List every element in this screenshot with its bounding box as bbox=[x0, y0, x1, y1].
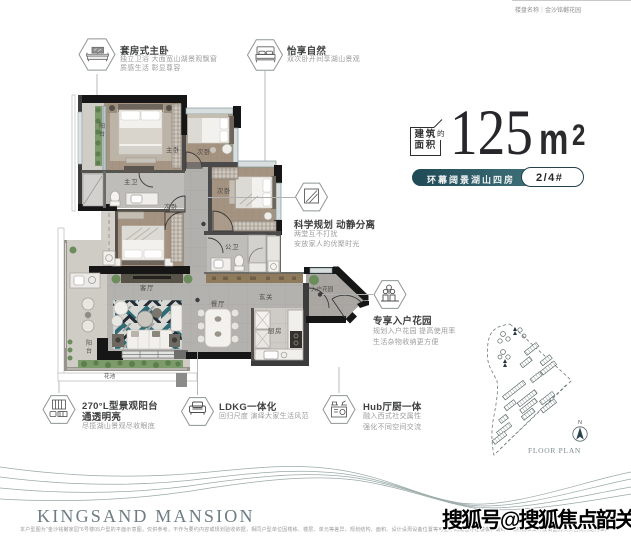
svg-text:入户花园: 入户花园 bbox=[311, 285, 334, 293]
svg-text:厨房: 厨房 bbox=[268, 326, 282, 335]
svg-text:阳: 阳 bbox=[86, 339, 92, 347]
svg-text:次卧: 次卧 bbox=[217, 186, 231, 195]
svg-text:主卧: 主卧 bbox=[166, 145, 180, 154]
svg-text:次卧: 次卧 bbox=[197, 147, 211, 156]
svg-text:餐厅: 餐厅 bbox=[211, 299, 225, 308]
svg-text:玄关: 玄关 bbox=[259, 292, 273, 301]
svg-text:阳: 阳 bbox=[99, 122, 105, 130]
svg-text:N: N bbox=[578, 420, 582, 426]
svg-text:台: 台 bbox=[86, 347, 92, 355]
svg-text:客厅: 客厅 bbox=[140, 283, 154, 292]
svg-text:花池: 花池 bbox=[104, 372, 116, 380]
svg-text:主卫: 主卫 bbox=[124, 177, 138, 186]
svg-text:台: 台 bbox=[99, 130, 105, 138]
svg-text:公卫: 公卫 bbox=[225, 243, 239, 251]
svg-text:次卧: 次卧 bbox=[164, 202, 178, 211]
